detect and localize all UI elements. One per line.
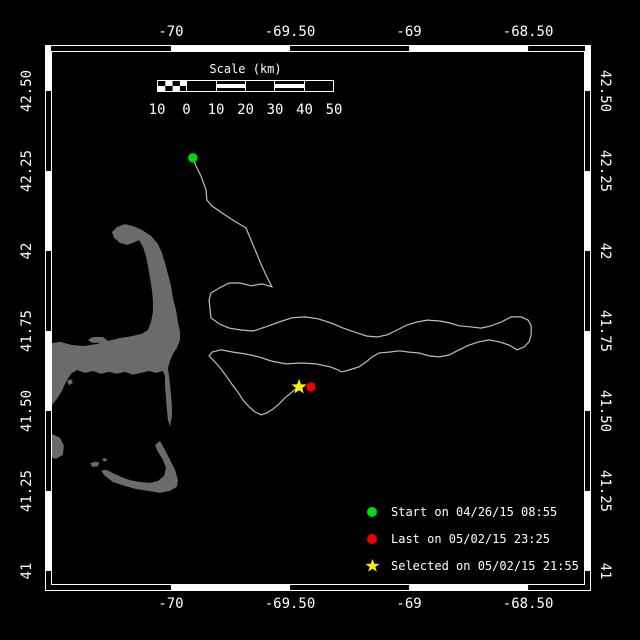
- x-tick-label-bottom: -69.50: [250, 596, 330, 612]
- legend-item-last: Last on 05/02/15 23:25: [358, 531, 598, 547]
- start-position-marker[interactable]: [188, 153, 197, 162]
- land-polygon: [102, 458, 108, 462]
- y-tick-label-right: 42.25: [597, 131, 613, 211]
- frame-band-segment: [46, 171, 51, 251]
- x-tick-label-top: -68.50: [488, 24, 568, 40]
- legend: Start on 04/26/15 08:55 Last on 05/02/15…: [358, 498, 598, 578]
- land-polygon: [67, 379, 73, 385]
- scale-bar: Scale (km) 10 0 10 20 30 40 50: [140, 62, 370, 124]
- y-tick-label-right: 41.75: [597, 291, 613, 371]
- scale-bar-segment: [274, 81, 303, 91]
- y-tick-label-left: 41.50: [19, 371, 35, 451]
- scale-bar-segment: [304, 81, 333, 91]
- x-tick-label-bottom: -69: [369, 596, 449, 612]
- land-polygon: [90, 462, 99, 467]
- scale-bar-segment: [186, 81, 215, 91]
- selected-star-icon: [365, 559, 380, 573]
- frame-band-segment: [585, 331, 590, 411]
- y-tick-label-right: 42.50: [597, 51, 613, 131]
- frame-band-segment: [409, 585, 528, 590]
- scale-bar-tick-label: 50: [316, 102, 352, 118]
- land-polygon: [48, 434, 64, 459]
- y-tick-label-left: 41.75: [19, 291, 35, 371]
- scale-bar-title: Scale (km): [157, 62, 334, 76]
- frame-band-segment: [46, 46, 51, 91]
- y-tick-label-left: 41.25: [19, 451, 35, 531]
- y-tick-label-left: 41: [19, 531, 35, 611]
- frame-band-segment: [171, 46, 290, 51]
- frame-band-segment: [171, 585, 290, 590]
- y-tick-label-right: 41: [597, 531, 613, 611]
- frame-band-segment: [585, 46, 590, 91]
- scale-bar-segment-checker: [158, 81, 186, 91]
- y-tick-label-right: 41.25: [597, 451, 613, 531]
- x-tick-label-top: -70: [131, 24, 211, 40]
- drifter-track-line[interactable]: [193, 158, 531, 415]
- frame-band-segment: [585, 171, 590, 251]
- x-tick-label-top: -69.50: [250, 24, 330, 40]
- scale-bar-graphic: [157, 80, 334, 92]
- scale-bar-segment: [245, 81, 274, 91]
- last-position-marker[interactable]: [306, 382, 315, 391]
- legend-label-last: Last on 05/02/15 23:25: [391, 531, 550, 547]
- legend-item-selected: Selected on 05/02/15 21:55: [358, 558, 598, 574]
- legend-label-start: Start on 04/26/15 08:55: [391, 504, 557, 520]
- land-polygon: [101, 441, 178, 493]
- y-tick-label-left: 42.25: [19, 131, 35, 211]
- y-tick-label-right: 41.50: [597, 371, 613, 451]
- land-polygon: [47, 224, 180, 427]
- x-tick-label-top: -69: [369, 24, 449, 40]
- map-figure: -70-70-69.50-69.50-69-69-68.50-68.5042.5…: [0, 0, 640, 640]
- frame-band-segment: [46, 491, 51, 571]
- y-tick-label-right: 42: [597, 211, 613, 291]
- scale-bar-segment: [216, 81, 245, 91]
- legend-label-selected: Selected on 05/02/15 21:55: [391, 558, 579, 574]
- y-tick-label-left: 42.50: [19, 51, 35, 131]
- x-tick-label-bottom: -68.50: [488, 596, 568, 612]
- start-marker-icon: [367, 507, 377, 517]
- frame-band-segment: [409, 46, 528, 51]
- y-tick-label-left: 42: [19, 211, 35, 291]
- legend-item-start: Start on 04/26/15 08:55: [358, 504, 598, 520]
- frame-band-segment: [46, 331, 51, 411]
- x-tick-label-bottom: -70: [131, 596, 211, 612]
- last-marker-icon: [367, 534, 377, 544]
